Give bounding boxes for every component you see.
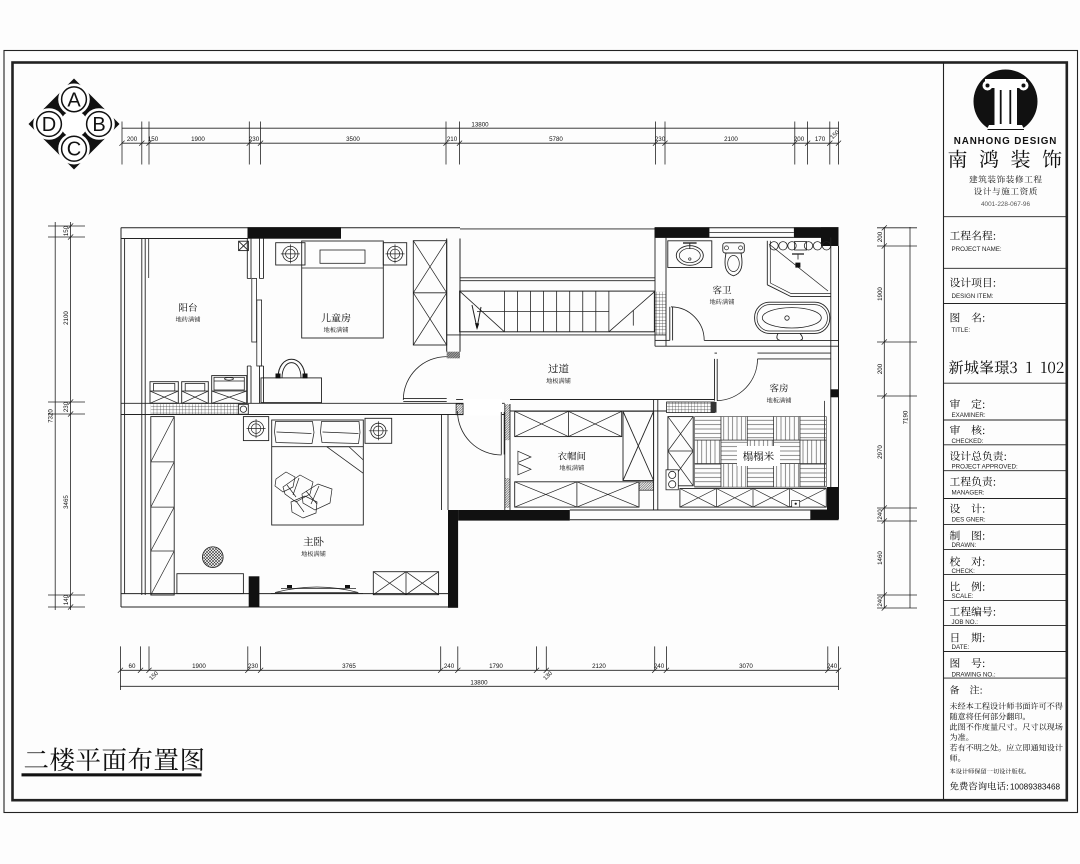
svg-text:1900: 1900	[191, 136, 205, 143]
svg-text:2100: 2100	[724, 136, 738, 143]
svg-text:TITLE:: TITLE:	[952, 327, 971, 334]
svg-text:140: 140	[63, 594, 70, 605]
svg-text:A: A	[67, 89, 81, 111]
svg-text:230: 230	[249, 136, 260, 143]
svg-text:240: 240	[877, 509, 884, 520]
svg-text:4001-228-067-96: 4001-228-067-96	[981, 201, 1030, 208]
svg-text:240: 240	[654, 663, 665, 670]
svg-text:1460: 1460	[877, 551, 884, 565]
svg-text:170: 170	[815, 136, 826, 143]
svg-text:200: 200	[794, 136, 805, 143]
svg-text:DES GNER:: DES GNER:	[952, 517, 986, 524]
svg-text:230: 230	[655, 136, 666, 143]
svg-text:1900: 1900	[192, 663, 206, 670]
svg-text:DRAWN:: DRAWN:	[952, 542, 977, 549]
svg-text:230: 230	[63, 401, 70, 412]
svg-text:7320: 7320	[48, 409, 55, 423]
svg-text:240: 240	[827, 663, 838, 670]
svg-text:150: 150	[63, 225, 70, 236]
svg-text:1790: 1790	[489, 663, 503, 670]
svg-text:5780: 5780	[549, 136, 563, 143]
svg-text:2970: 2970	[877, 445, 884, 459]
svg-text:CHECK:: CHECK:	[952, 568, 976, 575]
svg-text:13800: 13800	[470, 679, 488, 686]
svg-text:3765: 3765	[342, 663, 356, 670]
svg-text:13800: 13800	[471, 121, 489, 128]
svg-text:7190: 7190	[903, 410, 910, 424]
svg-text:DRAWING NO.:: DRAWING NO.:	[952, 672, 996, 679]
svg-text:240: 240	[444, 663, 455, 670]
svg-text:3070: 3070	[739, 663, 753, 670]
svg-text:EXAMINER:: EXAMINER:	[952, 412, 986, 419]
svg-text:NANHONG DESIGN: NANHONG DESIGN	[954, 136, 1058, 147]
svg-text:PROJECT NAME:: PROJECT NAME:	[952, 246, 1002, 253]
svg-text:CHECKED:: CHECKED:	[952, 438, 984, 445]
svg-text:D: D	[42, 114, 56, 136]
svg-text:240: 240	[877, 596, 884, 607]
svg-text:PROJECT APPROVED:: PROJECT APPROVED:	[952, 464, 1019, 471]
svg-text:200: 200	[877, 231, 884, 242]
svg-text:3465: 3465	[63, 495, 70, 509]
svg-text:230: 230	[248, 663, 259, 670]
svg-text:2120: 2120	[592, 663, 606, 670]
svg-text:60: 60	[129, 663, 136, 670]
svg-text:200: 200	[127, 136, 138, 143]
svg-text:2100: 2100	[63, 311, 70, 325]
svg-text:10089383468: 10089383468	[1010, 783, 1061, 792]
svg-text:200: 200	[877, 363, 884, 374]
svg-text:MANAGER:: MANAGER:	[952, 490, 985, 497]
svg-text:DESIGN ITEM:: DESIGN ITEM:	[952, 293, 994, 300]
svg-text:DATE:: DATE:	[952, 644, 970, 651]
svg-text:JOB NO.:: JOB NO.:	[952, 619, 979, 626]
svg-text:SCALE:: SCALE:	[952, 593, 974, 600]
svg-text:150: 150	[148, 136, 159, 143]
svg-text:1900: 1900	[877, 287, 884, 301]
svg-text:3500: 3500	[346, 136, 360, 143]
svg-text:210: 210	[447, 136, 458, 143]
svg-text:B: B	[92, 114, 105, 136]
svg-text:C: C	[67, 139, 81, 161]
